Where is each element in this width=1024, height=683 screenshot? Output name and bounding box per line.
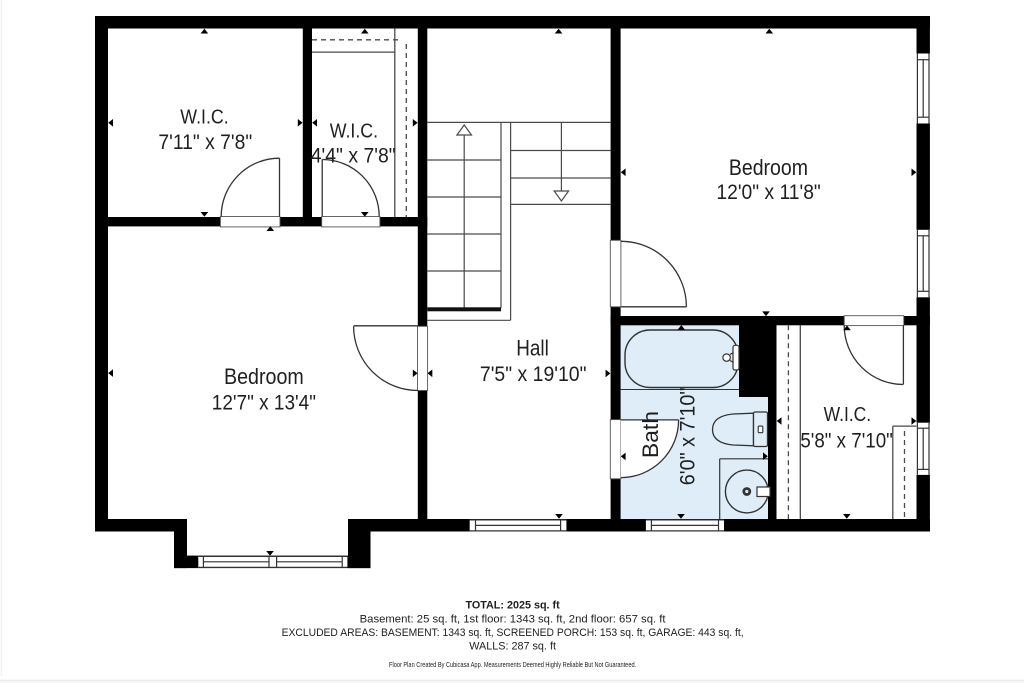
svg-text:W.I.C.: W.I.C. xyxy=(180,107,228,129)
svg-text:12'7" x 13'4": 12'7" x 13'4" xyxy=(212,390,316,414)
svg-text:4'4" x 7'8": 4'4" x 7'8" xyxy=(311,144,396,168)
svg-text:Floor Plan Created By Cubicasa: Floor Plan Created By Cubicasa App. Meas… xyxy=(389,660,636,669)
svg-text:7'5" x 19'10": 7'5" x 19'10" xyxy=(480,362,587,386)
svg-text:Hall: Hall xyxy=(516,335,549,360)
svg-text:12'0" x 11'8": 12'0" x 11'8" xyxy=(716,180,820,204)
svg-text:Bath: Bath xyxy=(638,411,663,458)
svg-text:6'0" x 7'10": 6'0" x 7'10" xyxy=(676,388,700,486)
svg-text:TOTAL: 2025 sq. ft: TOTAL: 2025 sq. ft xyxy=(465,600,560,612)
svg-text:EXCLUDED AREAS: BASEMENT: 1343: EXCLUDED AREAS: BASEMENT: 1343 sq. ft, S… xyxy=(282,627,744,639)
svg-text:Bedroom: Bedroom xyxy=(224,364,304,389)
svg-text:5'8" x 7'10": 5'8" x 7'10" xyxy=(800,429,893,453)
svg-text:Basement: 25 sq. ft, 1st floor: Basement: 25 sq. ft, 1st floor: 1343 sq.… xyxy=(360,613,666,625)
svg-text:7'11" x 7'8": 7'11" x 7'8" xyxy=(158,130,252,154)
svg-text:W.I.C.: W.I.C. xyxy=(330,120,378,142)
svg-text:W.I.C.: W.I.C. xyxy=(824,404,872,426)
svg-text:Bedroom: Bedroom xyxy=(729,155,808,180)
svg-text:WALLS: 287 sq. ft: WALLS: 287 sq. ft xyxy=(469,641,556,653)
